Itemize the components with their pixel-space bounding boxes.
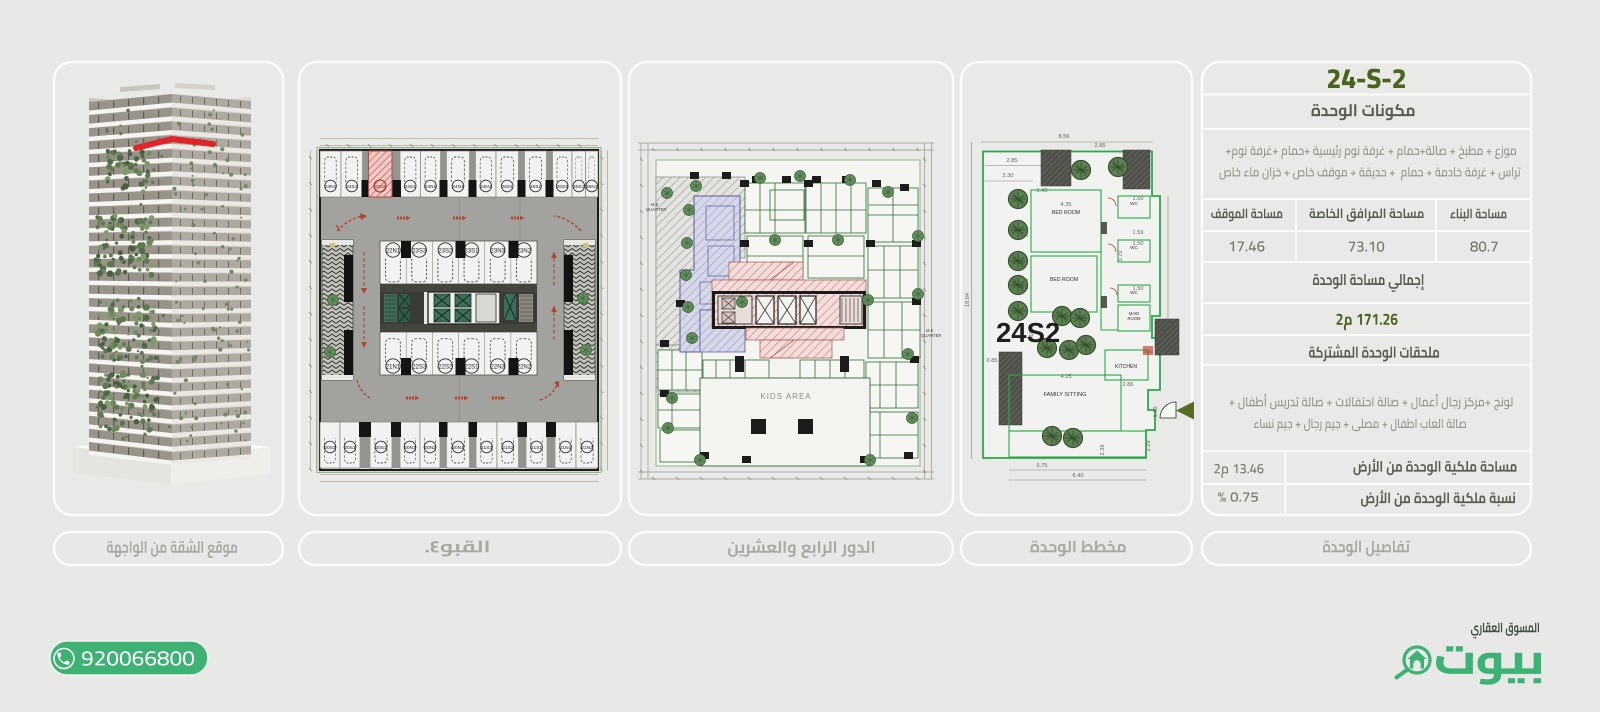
svg-text:6.40: 6.40 (1073, 473, 1084, 479)
svg-text:4.35: 4.35 (1061, 202, 1072, 208)
svg-text:20N2: 20N2 (424, 445, 436, 451)
svg-text:BED ROOM: BED ROOM (1050, 277, 1078, 283)
svg-text:24S2: 24S2 (374, 184, 386, 190)
svg-text:KITCHEN: KITCHEN (1115, 364, 1137, 370)
svg-text:24N1: 24N1 (452, 184, 464, 190)
svg-text:ROOM: ROOM (1127, 316, 1141, 321)
svg-text:20S1: 20S1 (344, 445, 356, 451)
svg-text:23N2: 23N2 (517, 248, 532, 254)
svg-text:2.85: 2.85 (1095, 143, 1106, 149)
svg-text:1.60: 1.60 (1153, 407, 1159, 418)
svg-text:23N3: 23N3 (491, 248, 506, 254)
svg-text:23S3: 23S3 (412, 248, 427, 254)
svg-text:24N1: 24N1 (425, 184, 437, 190)
svg-text:24S1: 24S1 (346, 184, 358, 190)
svg-text:22N3: 22N3 (491, 364, 506, 370)
svg-text:2.85: 2.85 (1007, 158, 1018, 164)
svg-text:KIDS AREA: KIDS AREA (760, 392, 811, 401)
svg-text:22N2: 22N2 (517, 364, 532, 370)
svg-text:23N1: 23N1 (325, 184, 337, 190)
svg-text:2.29: 2.29 (1146, 441, 1152, 452)
svg-text:21S1: 21S1 (531, 445, 543, 451)
svg-text:21S3: 21S3 (481, 445, 493, 451)
svg-text:24S1: 24S1 (405, 184, 417, 190)
svg-text:25S1: 25S1 (573, 184, 585, 190)
svg-text:1.43: 1.43 (1037, 188, 1048, 194)
svg-text:21S2: 21S2 (502, 445, 514, 451)
svg-text:26S3: 26S3 (557, 184, 569, 190)
svg-text:22S3: 22S3 (412, 364, 427, 370)
svg-text:0.85: 0.85 (987, 358, 998, 364)
svg-text:2.30: 2.30 (1003, 173, 1014, 179)
svg-text:21N2: 21N2 (581, 445, 593, 451)
svg-text:20S1: 20S1 (375, 445, 387, 451)
svg-text:22N1: 22N1 (386, 248, 401, 254)
svg-text:26S2: 26S2 (530, 184, 542, 190)
svg-text:QUARTER: QUARTER (921, 333, 941, 338)
svg-text:5.75: 5.75 (1037, 463, 1048, 469)
svg-text:FAMILY SITTING: FAMILY SITTING (1044, 392, 1087, 398)
svg-text:24S2: 24S2 (996, 317, 1060, 348)
svg-text:18.04: 18.04 (965, 293, 971, 307)
svg-text:2.86: 2.86 (1123, 382, 1134, 388)
svg-text:23S1: 23S1 (464, 248, 479, 254)
svg-text:1.59: 1.59 (1133, 230, 1144, 236)
svg-text:8.56: 8.56 (1059, 134, 1070, 140)
svg-text:QUARTER: QUARTER (646, 207, 666, 212)
svg-text:21N1: 21N1 (560, 445, 572, 451)
svg-text:20N1: 20N1 (452, 445, 464, 451)
svg-text:25N1: 25N1 (586, 184, 598, 190)
svg-text:WC: WC (1130, 290, 1138, 295)
svg-text:21N1: 21N1 (386, 364, 401, 370)
svg-text:22S1: 22S1 (464, 364, 479, 370)
svg-text:23S2: 23S2 (438, 248, 453, 254)
svg-text:20S3: 20S3 (324, 445, 336, 451)
svg-text:20N3: 20N3 (404, 445, 416, 451)
svg-text:1.70: 1.70 (1118, 251, 1124, 262)
svg-text:26S1: 26S1 (502, 184, 514, 190)
svg-text:24N1: 24N1 (480, 184, 492, 190)
svg-text:2.39: 2.39 (1100, 445, 1106, 456)
svg-text:WC: WC (1130, 201, 1138, 206)
svg-text:BED ROOM: BED ROOM (1052, 210, 1080, 216)
svg-text:22S2: 22S2 (438, 364, 453, 370)
svg-text:WC: WC (1130, 245, 1138, 250)
